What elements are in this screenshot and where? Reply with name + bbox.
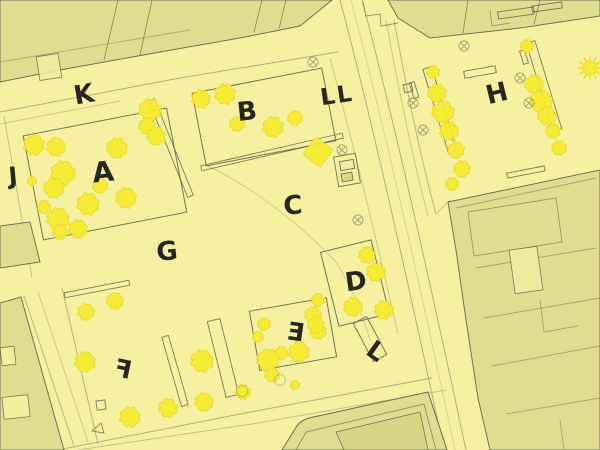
courtyard-sq-2: [2, 395, 30, 420]
area-label-LL: LL: [319, 81, 356, 111]
site-plan: KBLLHJACGDEFL: [0, 0, 600, 450]
courtyard-sq-1: [0, 346, 16, 365]
area-label-B: B: [236, 96, 259, 128]
courtyard-notch: [36, 53, 61, 80]
inner-building: [509, 246, 543, 293]
area-label-A: A: [90, 154, 115, 189]
area-label-C: C: [282, 190, 303, 221]
kiosk-top: [339, 159, 354, 170]
site-plan-svg: KBLLHJACGDEFL: [0, 0, 600, 450]
area-label-D: D: [343, 266, 369, 299]
kiosk-base: [341, 172, 353, 182]
area-label-G: G: [155, 236, 179, 268]
